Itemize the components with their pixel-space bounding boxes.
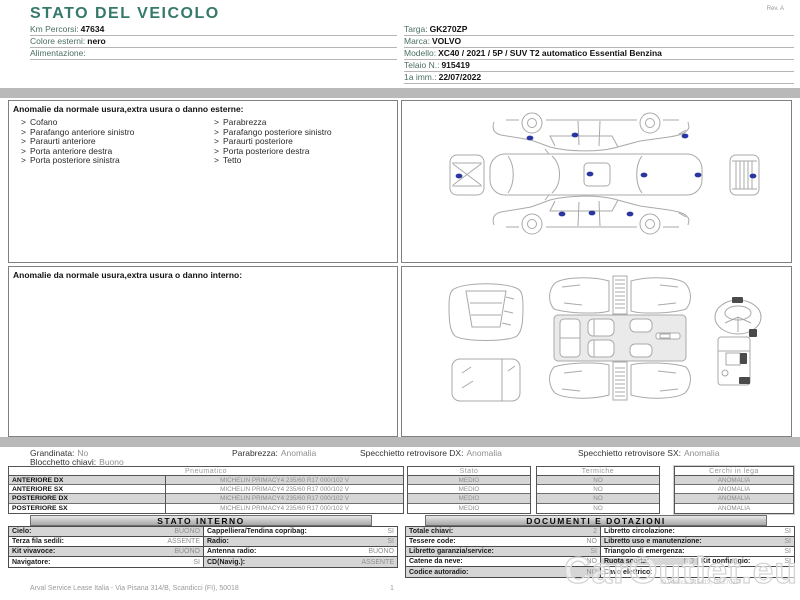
anomaly-item: >Porta posteriore sinistra [21,156,134,166]
table-row: MEDIO [408,476,530,485]
table-row: Navigatore:SI CD(Navig.):ASSENTE [9,557,397,567]
tire-termiche: NO [537,504,659,513]
bullet: > [214,136,219,146]
tire-stato: MEDIO [408,504,530,513]
summary-label: Specchietto retrovisore SX: [578,448,681,458]
table-cell: Libretto garanzia/service:SI [406,547,601,556]
table-row: NO [537,476,659,485]
tire-spec: MICHELIN PRIMACY4 235/60 R17 000/102 V [166,494,403,503]
bullet: > [21,146,26,156]
tire-stato: MEDIO [408,476,530,485]
field-value: VOLVO [432,36,461,46]
anomaly-label: Cofano [30,117,57,127]
divider-band [0,88,800,98]
field-label: Marca: [404,36,430,46]
table-row: Codice autoradio:NO Cavo elettrico: [406,567,794,577]
table-cell: Codice autoradio:NO [406,567,601,577]
anomaly-label: Parafango posteriore sinistro [223,127,332,137]
field-value: GK270ZP [430,24,468,34]
table-cell: Navigatore:SI [9,557,204,567]
field-label: Modello: [404,48,436,58]
table-cell: Catene da neve:NO [406,557,601,566]
field-label: Colore esterni: [30,36,85,46]
table-cell: Antenna radio:BUONO [204,547,397,556]
exterior-anomalies-box: Anomalie da normale usura,extra usura o … [8,100,398,263]
field-prima-imm: 1a imm.:22/07/2022 [404,72,794,84]
summary-value: Anomalia [281,448,316,458]
anomaly-label: Paraurti anteriore [30,136,96,146]
table-cell: Cielo:BUONO [9,527,204,536]
tire-cerchi: ANOMALIA [675,476,793,485]
interior-diagram [402,267,791,436]
damage-dots [456,133,757,217]
table-row: MEDIO [408,504,530,513]
exterior-anomalies-header: Anomalie da normale usura,extra usura o … [13,104,244,114]
field-value: nero [87,36,105,46]
table-row: ANTERIORE DXMICHELIN PRIMACY4 235/60 R17… [9,476,403,485]
bullet: > [214,146,219,156]
tire-col-header: Termiche [537,467,659,476]
table-row: ANOMALIA [675,494,793,503]
tire-col-header: Pneumatico [9,467,403,476]
table-row: MEDIO [408,494,530,503]
tire-col-header: Cerchi in lega [675,467,793,476]
bullet: > [21,136,26,146]
tire-stato: MEDIO [408,485,530,494]
summary-specchietto-sx: Specchietto retrovisore SX:Anomalia [578,448,719,458]
field-value: 47634 [81,24,105,34]
table-row: POSTERIORE DXMICHELIN PRIMACY4 235/60 R1… [9,494,403,503]
bullet: > [21,117,26,127]
exterior-anomalies-col1: >Cofano >Parafango anteriore sinistro >P… [21,118,134,166]
table-row: Terza fila sedili:ASSENTE Radio:SI [9,537,397,547]
table-cell: Libretto uso e manutenzione:SI [601,537,794,546]
table-row: Tessere code:NO Libretto uso e manutenzi… [406,537,794,547]
tire-position: ANTERIORE DX [9,476,166,485]
table-cell: Triangolo di emergenza:SI [601,547,794,556]
interior-marks [732,297,757,384]
field-modello: Modello:XC40 / 2021 / 5P / SUV T2 automa… [404,48,794,60]
tire-position: POSTERIORE SX [9,504,166,513]
table-subcell: Kit gonfiaggio:SI [698,558,794,565]
table-cell: Radio:SI [204,537,397,546]
field-targa: Targa:GK270ZP [404,24,794,36]
tire-spec: MICHELIN PRIMACY4 235/60 R17 000/102 V [166,476,403,485]
bullet: > [21,155,26,165]
table-row: Libretto garanzia/service:SI Triangolo d… [406,547,794,557]
tire-cerchi: ANOMALIA [675,504,793,513]
field-value: 915419 [441,60,469,70]
field-alimentazione: Alimentazione: [30,48,397,60]
tire-table-cerchi: Cerchi in lega ANOMALIA ANOMALIA ANOMALI… [674,466,794,514]
table-subcell: Ruota scorta:NO [601,558,698,565]
tire-cerchi: ANOMALIA [675,485,793,494]
table-cell: CD(Navig.):ASSENTE [204,557,397,567]
summary-value: Anomalia [684,448,719,458]
table-cell: Kit vivavoce:BUONO [9,547,204,556]
tire-termiche: NO [537,494,659,503]
summary-value: Anomalia [466,448,501,458]
tire-table-pneumatico: Pneumatico ANTERIORE DXMICHELIN PRIMACY4… [8,466,404,514]
summary-parabrezza: Parabrezza:Anomalia [232,448,316,458]
watermark-id: ID verifica: 915419, GK270ZP [660,580,740,586]
exterior-diagram-box [401,100,792,263]
interior-diagram-box [401,266,792,437]
stato-interno-table: Cielo:BUONO Cappelliera/Tendina copribag… [8,526,398,568]
tire-spec: MICHELIN PRIMACY4 235/60 R17 000/102 V [166,485,403,494]
interior-anomalies-box: Anomalie da normale usura,extra usura o … [8,266,398,437]
field-value: 22/07/2022 [439,72,482,82]
bullet: > [214,117,219,127]
field-km-percorsi: Km Percorsi:47634 [30,24,397,36]
field-label: Alimentazione: [30,48,86,58]
tire-stato: MEDIO [408,494,530,503]
table-row: NO [537,485,659,494]
table-cell: Tessere code:NO [406,537,601,546]
tire-table-termiche: Termiche NO NO NO NO [536,466,660,514]
table-row: ANOMALIA [675,476,793,485]
table-cell: Ruota scorta:NO Kit gonfiaggio:SI [601,557,794,566]
table-row: NO [537,494,659,503]
exterior-damage-diagram [402,101,791,262]
field-label: Km Percorsi: [30,24,79,34]
tire-termiche: NO [537,485,659,494]
table-row: NO [537,504,659,513]
summary-label: Specchietto retrovisore DX: [360,448,463,458]
interior-anomalies-header: Anomalie da normale usura,extra usura o … [13,270,242,280]
tire-spec: MICHELIN PRIMACY4 235/60 R17 000/102 V [166,504,403,513]
field-label: Telaio N.: [404,60,439,70]
tire-position: ANTERIORE SX [9,485,166,494]
tire-position: POSTERIORE DX [9,494,166,503]
vehicle-report-page: STATO DEL VEICOLO Rev. A Km Percorsi:476… [0,0,800,600]
anomaly-item: >Tetto [214,156,332,166]
table-row: MEDIO [408,485,530,494]
bullet: > [214,127,219,137]
table-row: ANOMALIA [675,485,793,494]
table-row: Totale chiavi:2 Libretto circolazione:SI [406,527,794,537]
footer-company: Arval Service Lease Italia - Via Pisana … [30,585,239,592]
field-label: 1a imm.: [404,72,437,82]
table-cell: Cavo elettrico: [601,567,794,577]
anomaly-label: Parafango anteriore sinistro [30,127,134,137]
tire-col-header: Stato [408,467,530,476]
revision-label: Rev. A [767,6,784,12]
field-colore-esterni: Colore esterni:nero [30,36,397,48]
table-row: POSTERIORE SXMICHELIN PRIMACY4 235/60 R1… [9,504,403,513]
field-marca: Marca:VOLVO [404,36,794,48]
table-cell: Terza fila sedili:ASSENTE [9,537,204,546]
divider-band [0,437,800,447]
anomaly-label: Paraurti posteriore [223,136,293,146]
table-cell: Cappelliera/Tendina copribag:SI [204,527,397,536]
anomaly-label: Porta posteriore sinistra [30,155,120,165]
documenti-header: DOCUMENTI E DOTAZIONI [425,515,767,526]
summary-specchietto-dx: Specchietto retrovisore DX:Anomalia [360,448,502,458]
tire-table-stato: Stato MEDIO MEDIO MEDIO MEDIO [407,466,531,514]
bullet: > [214,155,219,165]
field-value: XC40 / 2021 / 5P / SUV T2 automatico Ess… [438,48,662,58]
table-row: Kit vivavoce:BUONO Antenna radio:BUONO [9,547,397,557]
footer-page-number: 1 [390,585,394,592]
tire-termiche: NO [537,476,659,485]
field-telaio: Telaio N.:915419 [404,60,794,72]
bullet: > [21,127,26,137]
table-row: Catene da neve:NO Ruota scorta:NO Kit go… [406,557,794,567]
tire-cerchi: ANOMALIA [675,494,793,503]
table-cell: Libretto circolazione:SI [601,527,794,536]
stato-interno-header: STATO INTERNO [30,515,372,526]
anomaly-label: Tetto [223,155,241,165]
table-row: ANTERIORE SXMICHELIN PRIMACY4 235/60 R17… [9,485,403,494]
table-row: ANOMALIA [675,504,793,513]
documenti-table: Totale chiavi:2 Libretto circolazione:SI… [405,526,795,578]
anomaly-label: Porta anteriore destra [30,146,112,156]
anomaly-label: Porta posteriore destra [223,146,309,156]
summary-label: Parabrezza: [232,448,278,458]
table-row: Cielo:BUONO Cappelliera/Tendina copribag… [9,527,397,537]
table-cell: Totale chiavi:2 [406,527,601,536]
page-title: STATO DEL VEICOLO [30,5,220,23]
exterior-anomalies-col2: >Parabrezza >Parafango posteriore sinist… [214,118,332,166]
field-label: Targa: [404,24,428,34]
anomaly-label: Parabrezza [223,117,266,127]
